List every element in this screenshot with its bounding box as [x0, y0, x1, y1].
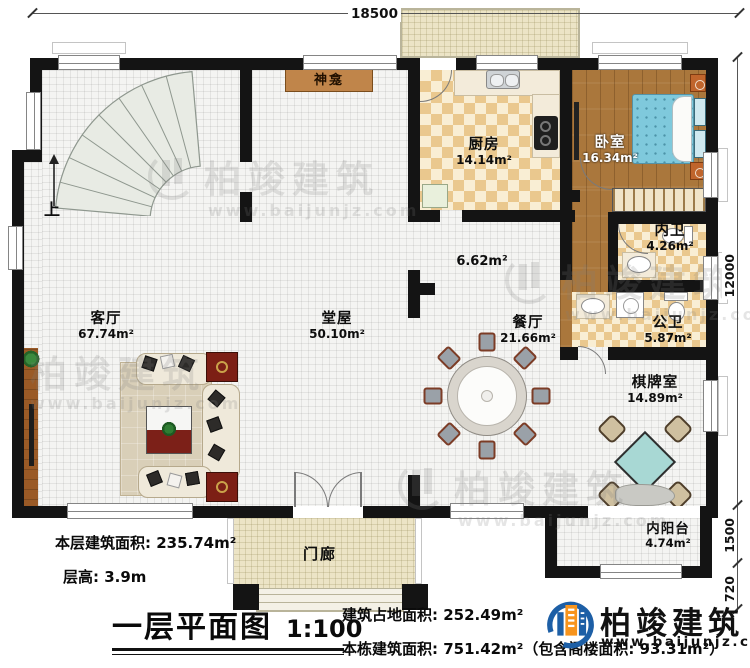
living-name: 客厅	[61, 312, 151, 328]
hall-name: 堂屋	[292, 312, 382, 328]
stairs-up-label: 上	[44, 196, 60, 220]
total-area-value: 751.42m²	[443, 640, 523, 658]
dimension-top-value: 18500	[348, 6, 401, 22]
title-underline-2	[112, 654, 344, 655]
wall-hall-pillar	[408, 270, 420, 318]
land-area-line: 建筑占地面积: 252.49m²	[342, 604, 523, 625]
brand-url: www.baijunjz.com	[601, 634, 750, 650]
watermark-logo-glyph	[398, 462, 446, 510]
room-label-hall: 堂屋 50.10m²	[292, 312, 382, 341]
floor-area-value: 235.74m²	[156, 534, 236, 552]
watermark: 柏竣建筑 www.baijunjz.com	[398, 462, 669, 529]
room-label-kitchen: 厨房 14.14m²	[439, 138, 529, 167]
tv-living	[29, 404, 34, 466]
watermark-url: www.baijunjz.com	[398, 513, 669, 529]
dining-chair	[424, 388, 443, 405]
wall-public-bath-south-a	[560, 347, 578, 360]
window-balcony	[600, 564, 682, 579]
window-top-hall	[303, 55, 397, 70]
brand-logo-icon	[542, 596, 596, 650]
watermark-text: 柏竣建筑	[561, 262, 737, 305]
window-bottom-living	[67, 503, 193, 519]
dining-chair	[479, 441, 496, 460]
room-label-chess: 棋牌室 14.89m²	[610, 376, 700, 405]
window-top-kitchen	[476, 55, 538, 70]
inner-bath-area: 4.26m²	[625, 240, 715, 253]
bedroom-area: 16.34m²	[565, 152, 655, 165]
entry-door-leaf-left	[294, 472, 296, 507]
window-left-lower	[8, 226, 23, 270]
burner	[540, 135, 551, 146]
window-sill	[718, 376, 728, 436]
fridge	[422, 184, 448, 208]
land-area-label: 建筑占地面积:	[342, 606, 438, 624]
burner	[540, 121, 551, 132]
floor-height-label: 层高:	[63, 568, 99, 586]
bed-headboard	[694, 98, 706, 126]
plan-title: 一层平面图	[112, 610, 272, 645]
chess-area: 14.89m²	[610, 392, 700, 405]
floor-height-line: 层高: 3.9m	[63, 566, 146, 587]
dining-table-center	[481, 390, 493, 402]
dimension-right-balcony: 1500	[722, 516, 737, 555]
kitchen-back-door-opening	[420, 58, 456, 70]
main-entry-opening	[293, 506, 363, 518]
bed-sheet	[672, 96, 692, 162]
window-sill	[592, 42, 688, 54]
room-label-bedroom: 卧室 16.34m²	[565, 136, 655, 165]
dimension-line-right	[737, 58, 738, 612]
watermark-logo-glyph	[148, 152, 196, 200]
window-right-chess	[703, 380, 718, 432]
porch-label: 门廊	[285, 543, 355, 564]
window-sill	[52, 42, 126, 54]
closet	[612, 188, 706, 212]
nightstand-top	[690, 74, 706, 92]
sink-basin	[505, 74, 519, 87]
watermark: 柏竣建筑 www.baijunjz.com	[148, 152, 419, 219]
nightstand-lamp	[695, 80, 705, 90]
bedroom-name: 卧室	[565, 136, 655, 152]
rear-terrace	[400, 8, 580, 58]
chess-name: 棋牌室	[610, 376, 700, 392]
total-area-label: 本栋建筑面积:	[342, 640, 438, 658]
dining-chair	[532, 388, 551, 405]
plan-title-line: 一层平面图1:100	[112, 602, 362, 646]
inner-bath-name: 内卫	[625, 224, 715, 240]
window-left-upper	[26, 92, 41, 150]
watermark-logo-glyph	[505, 256, 553, 304]
dining-area: 21.66m²	[483, 332, 573, 345]
living-area: 67.74m²	[61, 328, 151, 341]
floor-area-label: 本层建筑面积:	[55, 534, 151, 552]
dimension-right-main: 12000	[722, 252, 737, 300]
floor-plan-canvas: 上 神龛	[0, 0, 750, 668]
window-top-stairs	[58, 55, 120, 70]
window-top-bedroom	[598, 55, 682, 70]
public-bath-area: 5.87m²	[623, 332, 713, 345]
stove	[534, 116, 558, 150]
wall-left-lower	[12, 150, 24, 518]
coffee-table-plant	[158, 418, 180, 440]
sofa-pillow	[185, 471, 200, 486]
kitchen-area: 14.14m²	[439, 154, 529, 167]
wall-stair-divider-a	[240, 70, 252, 162]
kitchen-sink	[486, 70, 520, 89]
window-right-bedroom	[703, 152, 718, 198]
hall-area: 50.10m²	[292, 328, 382, 341]
title-underline	[112, 648, 344, 651]
room-label-inner-bath: 内卫 4.26m²	[625, 224, 715, 253]
room-label-living: 客厅 67.74m²	[61, 312, 151, 341]
floor-area-line: 本层建筑面积: 235.74m²	[55, 532, 236, 553]
wall-public-bath-south-b	[608, 347, 706, 360]
wall-bedroom-south-stub	[572, 190, 580, 202]
side-table-ring	[216, 481, 228, 493]
watermark-text: 柏竣建筑	[30, 353, 206, 396]
shrine-label: 神龛	[314, 69, 344, 88]
watermark-text: 柏竣建筑	[204, 158, 380, 201]
watermark: 柏竣建筑 www.baijunjz.com	[30, 356, 241, 412]
window-sill	[718, 148, 728, 202]
sink-basin	[490, 74, 504, 87]
entry-door-leaf-right	[360, 472, 362, 507]
wall-hall-stub	[420, 283, 435, 295]
wall-kitchen-south-b	[462, 210, 575, 222]
kitchen-name: 厨房	[439, 138, 529, 154]
watermark-url: www.baijunjz.com	[30, 396, 241, 412]
watermark-url: www.baijunjz.com	[505, 307, 750, 323]
watermark: 柏竣建筑 www.baijunjz.com	[505, 256, 750, 323]
watermark-text: 柏竣建筑	[454, 468, 630, 511]
floor-height-value: 3.9m	[104, 568, 146, 586]
balcony-area: 4.74m²	[623, 537, 713, 550]
watermark-url: www.baijunjz.com	[148, 203, 419, 219]
land-area-value: 252.49m²	[443, 606, 523, 624]
